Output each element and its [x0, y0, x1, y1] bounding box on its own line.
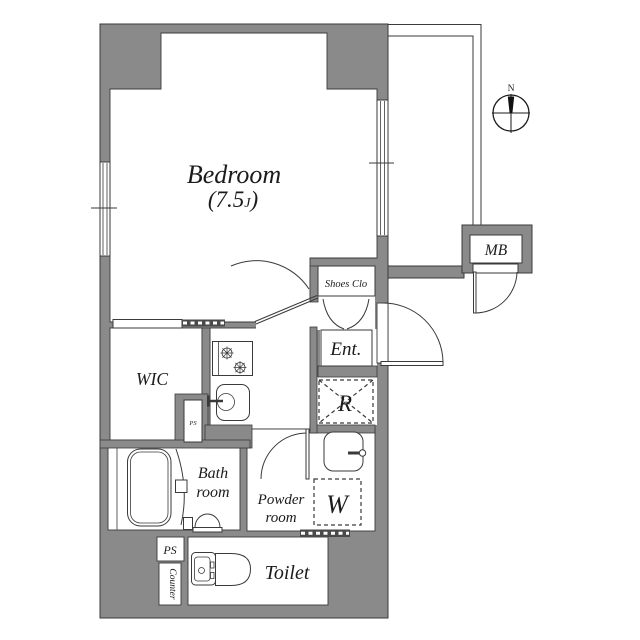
stove-icon	[213, 342, 253, 376]
north-compass-icon: N	[492, 84, 530, 133]
floorplan-canvas: N Bedroom (7.5J) WIC Shoes Clo Ent. R W …	[0, 0, 640, 640]
bedroom-size-label: (7.5J)	[208, 187, 258, 212]
meter-box-label: MB	[484, 242, 508, 259]
door-swing-arc	[382, 303, 444, 362]
counter-label: Counter	[167, 568, 177, 599]
porch-inner-line	[388, 36, 473, 225]
lavatory-sink-icon	[324, 432, 366, 471]
toilet-hatch-strip	[300, 530, 350, 538]
meter-box-door	[474, 272, 518, 313]
door-swing-arc	[475, 272, 517, 313]
burner-icon	[221, 347, 234, 360]
toilet-label: Toilet	[265, 562, 310, 584]
compass-needle	[508, 97, 514, 114]
floorplan-drawing: N Bedroom (7.5J) WIC Shoes Clo Ent. R W …	[0, 0, 640, 640]
porch-bottom-wall	[388, 266, 464, 278]
powder-room-label-line2: room	[265, 510, 296, 526]
bathtub-outer	[128, 449, 172, 526]
bathroom-top-wall	[100, 440, 250, 448]
faucet-block	[184, 518, 193, 530]
entrance-door	[381, 303, 443, 366]
wic-label: WIC	[136, 369, 168, 389]
sink-basin	[217, 385, 250, 421]
faucet-base	[193, 528, 222, 533]
entrance-refrigerator-wall	[318, 366, 377, 377]
entrance-label: Ent.	[329, 339, 361, 360]
door-leaf	[474, 272, 477, 313]
shoes-closet-label: Shoes Clo	[325, 279, 367, 290]
kitchen-hatch-strip	[182, 320, 225, 327]
bedroom-label: Bedroom	[187, 160, 281, 189]
faucet-base	[207, 396, 210, 407]
door-handle	[176, 480, 188, 493]
entry-porch-outline	[388, 25, 481, 226]
left-window-frame	[100, 162, 110, 256]
pipe-space-toilet-label: PS	[162, 543, 176, 557]
washer-label: W	[326, 490, 350, 519]
bathroom-label-line2: room	[196, 484, 229, 501]
wic-sliding-opening	[113, 320, 182, 329]
toilet-bowl	[216, 554, 251, 586]
faucet-knob	[359, 450, 365, 456]
vestibule-area	[256, 298, 320, 330]
shoes-closet-area	[317, 296, 375, 329]
door-leaf	[306, 429, 309, 479]
right-window-frame	[377, 100, 388, 236]
powder-room-label-line1: Powder	[257, 492, 305, 508]
pipe-space-kitchen-label: PS	[188, 420, 197, 427]
toilet-icon	[192, 553, 251, 586]
entrance-left-wall	[310, 327, 317, 433]
refrigerator-label: R	[337, 391, 352, 416]
burner-icon	[234, 361, 247, 374]
bathroom-label-line1: Bath	[198, 465, 228, 482]
meter-box-opening	[473, 264, 518, 273]
hatch-bar	[182, 320, 225, 327]
porch-outer-line	[388, 25, 481, 226]
north-label: N	[508, 84, 515, 94]
door-leaf	[381, 362, 443, 366]
entrance-doorway-gap	[377, 303, 388, 363]
